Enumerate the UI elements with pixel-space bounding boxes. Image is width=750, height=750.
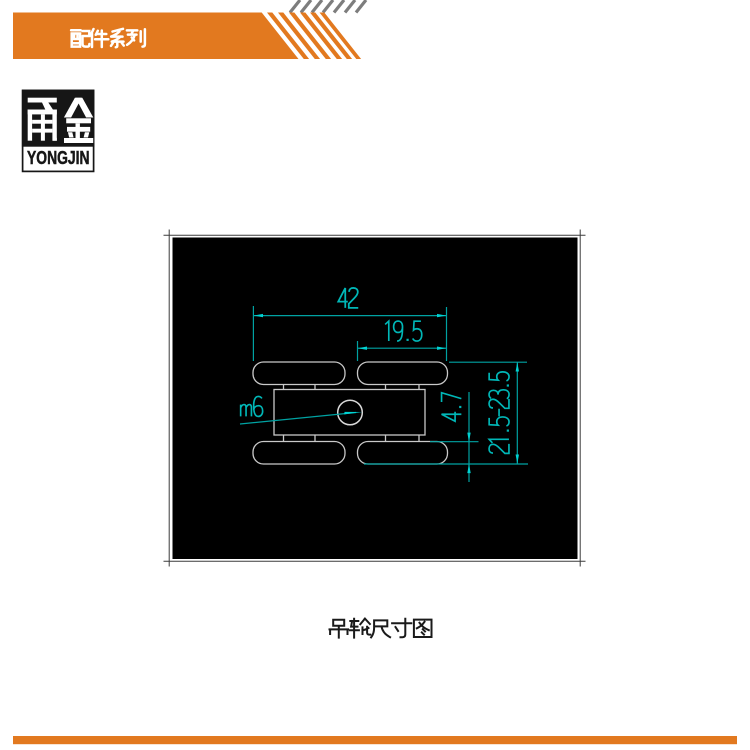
- svg-text:YONGJIN: YONGJIN: [27, 148, 90, 168]
